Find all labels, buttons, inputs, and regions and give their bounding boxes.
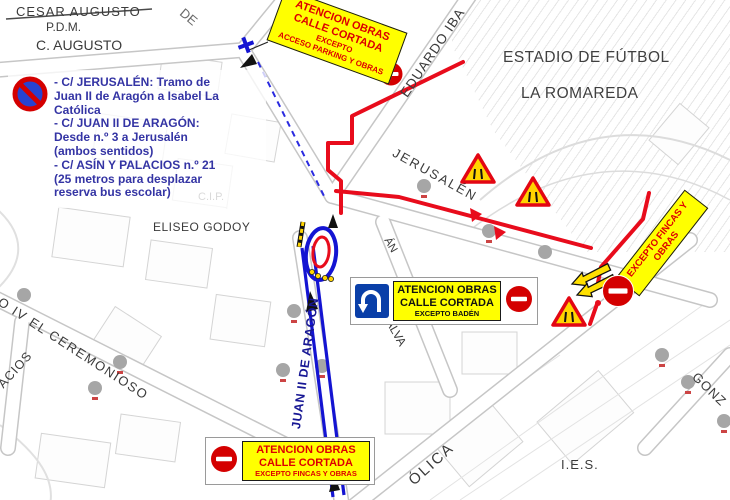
label-ies: I.E.S.: [561, 458, 599, 471]
banner-line: CALLE CORTADA: [244, 457, 368, 470]
closure-legend: - C/ JERUSALÉN: Tramo de Juan II de Arag…: [8, 70, 266, 208]
legend-line: - C/ JERUSALÉN: Tramo de: [54, 76, 219, 90]
label-cesar-augusto: CESAR AUGUSTO: [16, 5, 141, 18]
no-entry-icon: [210, 445, 238, 478]
banner-line: CALLE CORTADA: [395, 297, 499, 310]
banner-line: EXCEPTO FINCAS Y OBRAS: [244, 469, 368, 478]
banner-line: ATENCION OBRAS: [395, 284, 499, 297]
no-entry-icon: [601, 274, 635, 313]
label-eliseo-godoy: ELISEO GODOY: [153, 221, 250, 233]
no-entry-icon: [505, 285, 533, 318]
u-turn-icon: [355, 284, 389, 318]
turnaround-loop-red: [311, 236, 330, 268]
legend-line: Desde n.º 3 a Jerusalén: [54, 131, 219, 145]
banner-line: EXCEPTO BADÉN: [395, 309, 499, 318]
banner-line: ATENCION OBRAS: [244, 444, 368, 457]
banner-middle-text: ATENCION OBRAS CALLE CORTADA EXCEPTO BAD…: [393, 281, 501, 321]
label-estadio-line2: LA ROMAREDA: [521, 86, 638, 102]
legend-line: - C/ ASÍN Y PALACIOS n.º 21: [54, 159, 219, 173]
legend-text-block: - C/ JERUSALÉN: Tramo de Juan II de Arag…: [54, 76, 219, 200]
label-c-augusto: C. AUGUSTO: [36, 38, 122, 52]
legend-line: Juan II de Aragón a Isabel La: [54, 90, 219, 104]
banner-bottom-calle-cortada: ATENCION OBRAS CALLE CORTADA EXCEPTO FIN…: [205, 437, 375, 485]
banner-bottom-text: ATENCION OBRAS CALLE CORTADA EXCEPTO FIN…: [242, 441, 370, 481]
banner-middle-calle-cortada: ATENCION OBRAS CALLE CORTADA EXCEPTO BAD…: [350, 277, 538, 325]
no-parking-icon: [12, 76, 48, 117]
legend-line: (ambos sentidos): [54, 145, 219, 159]
legend-line: - C/ JUAN II DE ARAGÓN:: [54, 117, 219, 131]
legend-line: (25 metros para desplazar: [54, 173, 219, 187]
legend-line: reserva bus escolar): [54, 186, 219, 200]
roadworks-closure-map: CESAR AUGUSTO P.D.M. C. AUGUSTO DE EDUAR…: [0, 0, 730, 500]
label-pdm: P.D.M.: [46, 21, 81, 33]
label-estadio-line1: ESTADIO DE FÚTBOL: [503, 50, 670, 66]
